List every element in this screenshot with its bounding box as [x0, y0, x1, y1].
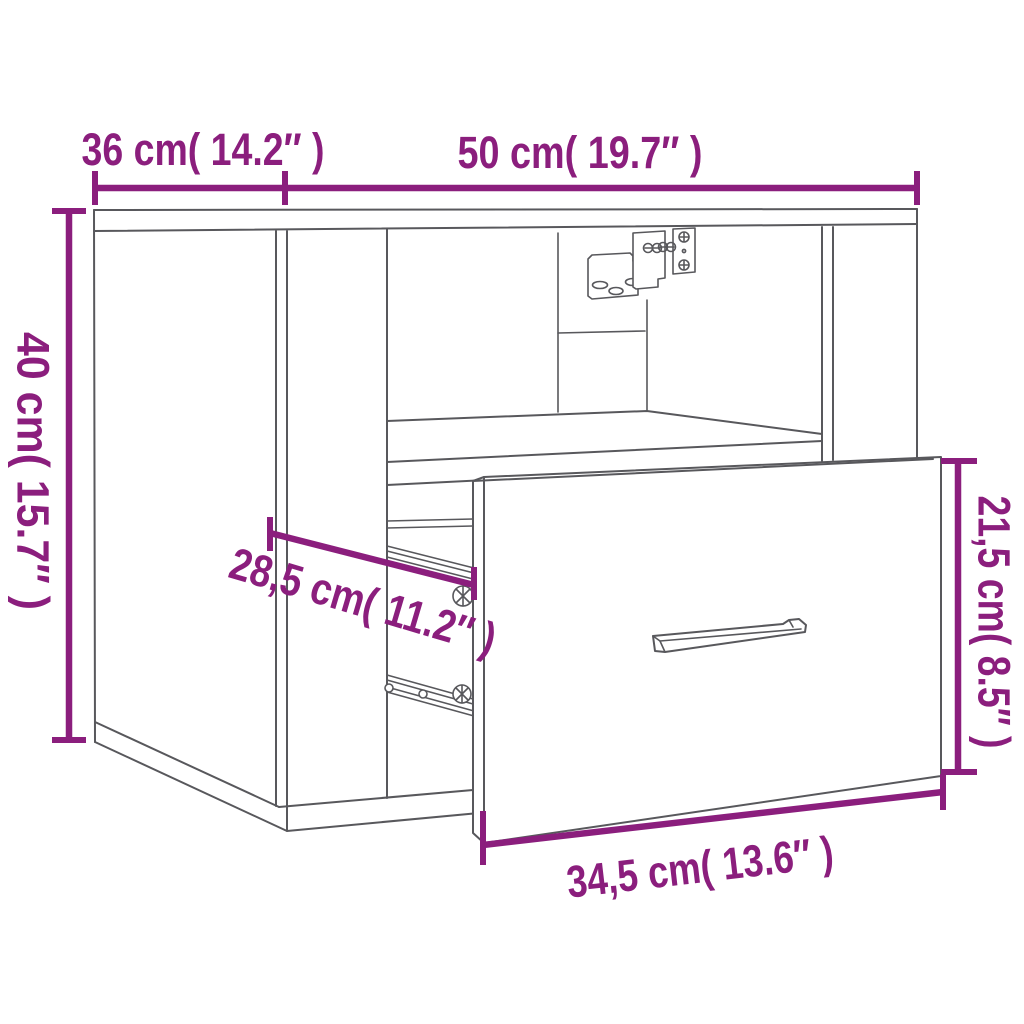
wall-bracket: [588, 228, 695, 299]
dimension-depth-top: 36 cm( 14.2″ ) 50 cm( 19.7″ ): [82, 124, 918, 205]
dimension-label-height: 40 cm( 15.7″ ): [8, 332, 59, 610]
dimension-label-width: 50 cm( 19.7″ ): [458, 127, 703, 178]
shelf-back-edge: [387, 411, 822, 434]
cabinet-top-band-bottom: [94, 224, 917, 231]
lower-slide-screw: [419, 690, 427, 698]
diagram-canvas: 36 cm( 14.2″ ) 50 cm( 19.7″ ) 40 cm( 15.…: [0, 0, 1024, 1024]
product-dimension-diagram: 36 cm( 14.2″ ) 50 cm( 19.7″ ) 40 cm( 15.…: [0, 0, 1024, 1024]
cabinet-bottom-band-bottom: [287, 813, 479, 831]
cabinet-bottom-band-top: [279, 790, 473, 807]
upper-slide-fixed-a: [387, 519, 473, 521]
bracket-plate-middle: [633, 231, 665, 289]
bracket-slot-1: [593, 282, 608, 289]
shelf-front-top-edge: [387, 441, 822, 462]
back-recess-bottom: [558, 331, 645, 333]
lower-slide-end-cap: [385, 684, 393, 692]
upper-slide-ext-b: [387, 551, 474, 573]
upper-slide-fixed-b: [387, 526, 473, 528]
cabinet-left-edge: [94, 210, 95, 742]
bracket-slot-3: [609, 288, 623, 295]
dimension-height-left: 40 cm( 15.7″ ): [8, 211, 87, 740]
cabinet-bottom-left-slant-inner: [95, 742, 287, 831]
dimension-label-drawer-height: 21,5 cm( 8.5″ ): [969, 496, 1020, 749]
dimension-label-drawer-width: 34,5 cm( 13.6″ ): [564, 826, 836, 907]
drawer-front-panel: [484, 457, 941, 843]
cabinet-bottom-left-slant-outer: [95, 722, 279, 807]
drawer-drawing: [473, 457, 941, 843]
dimension-drawer-height-right: 21,5 cm( 8.5″ ): [941, 461, 1020, 772]
cabinet-top-edge: [94, 209, 917, 210]
dimension-label-depth: 36 cm( 14.2″ ): [82, 124, 325, 175]
